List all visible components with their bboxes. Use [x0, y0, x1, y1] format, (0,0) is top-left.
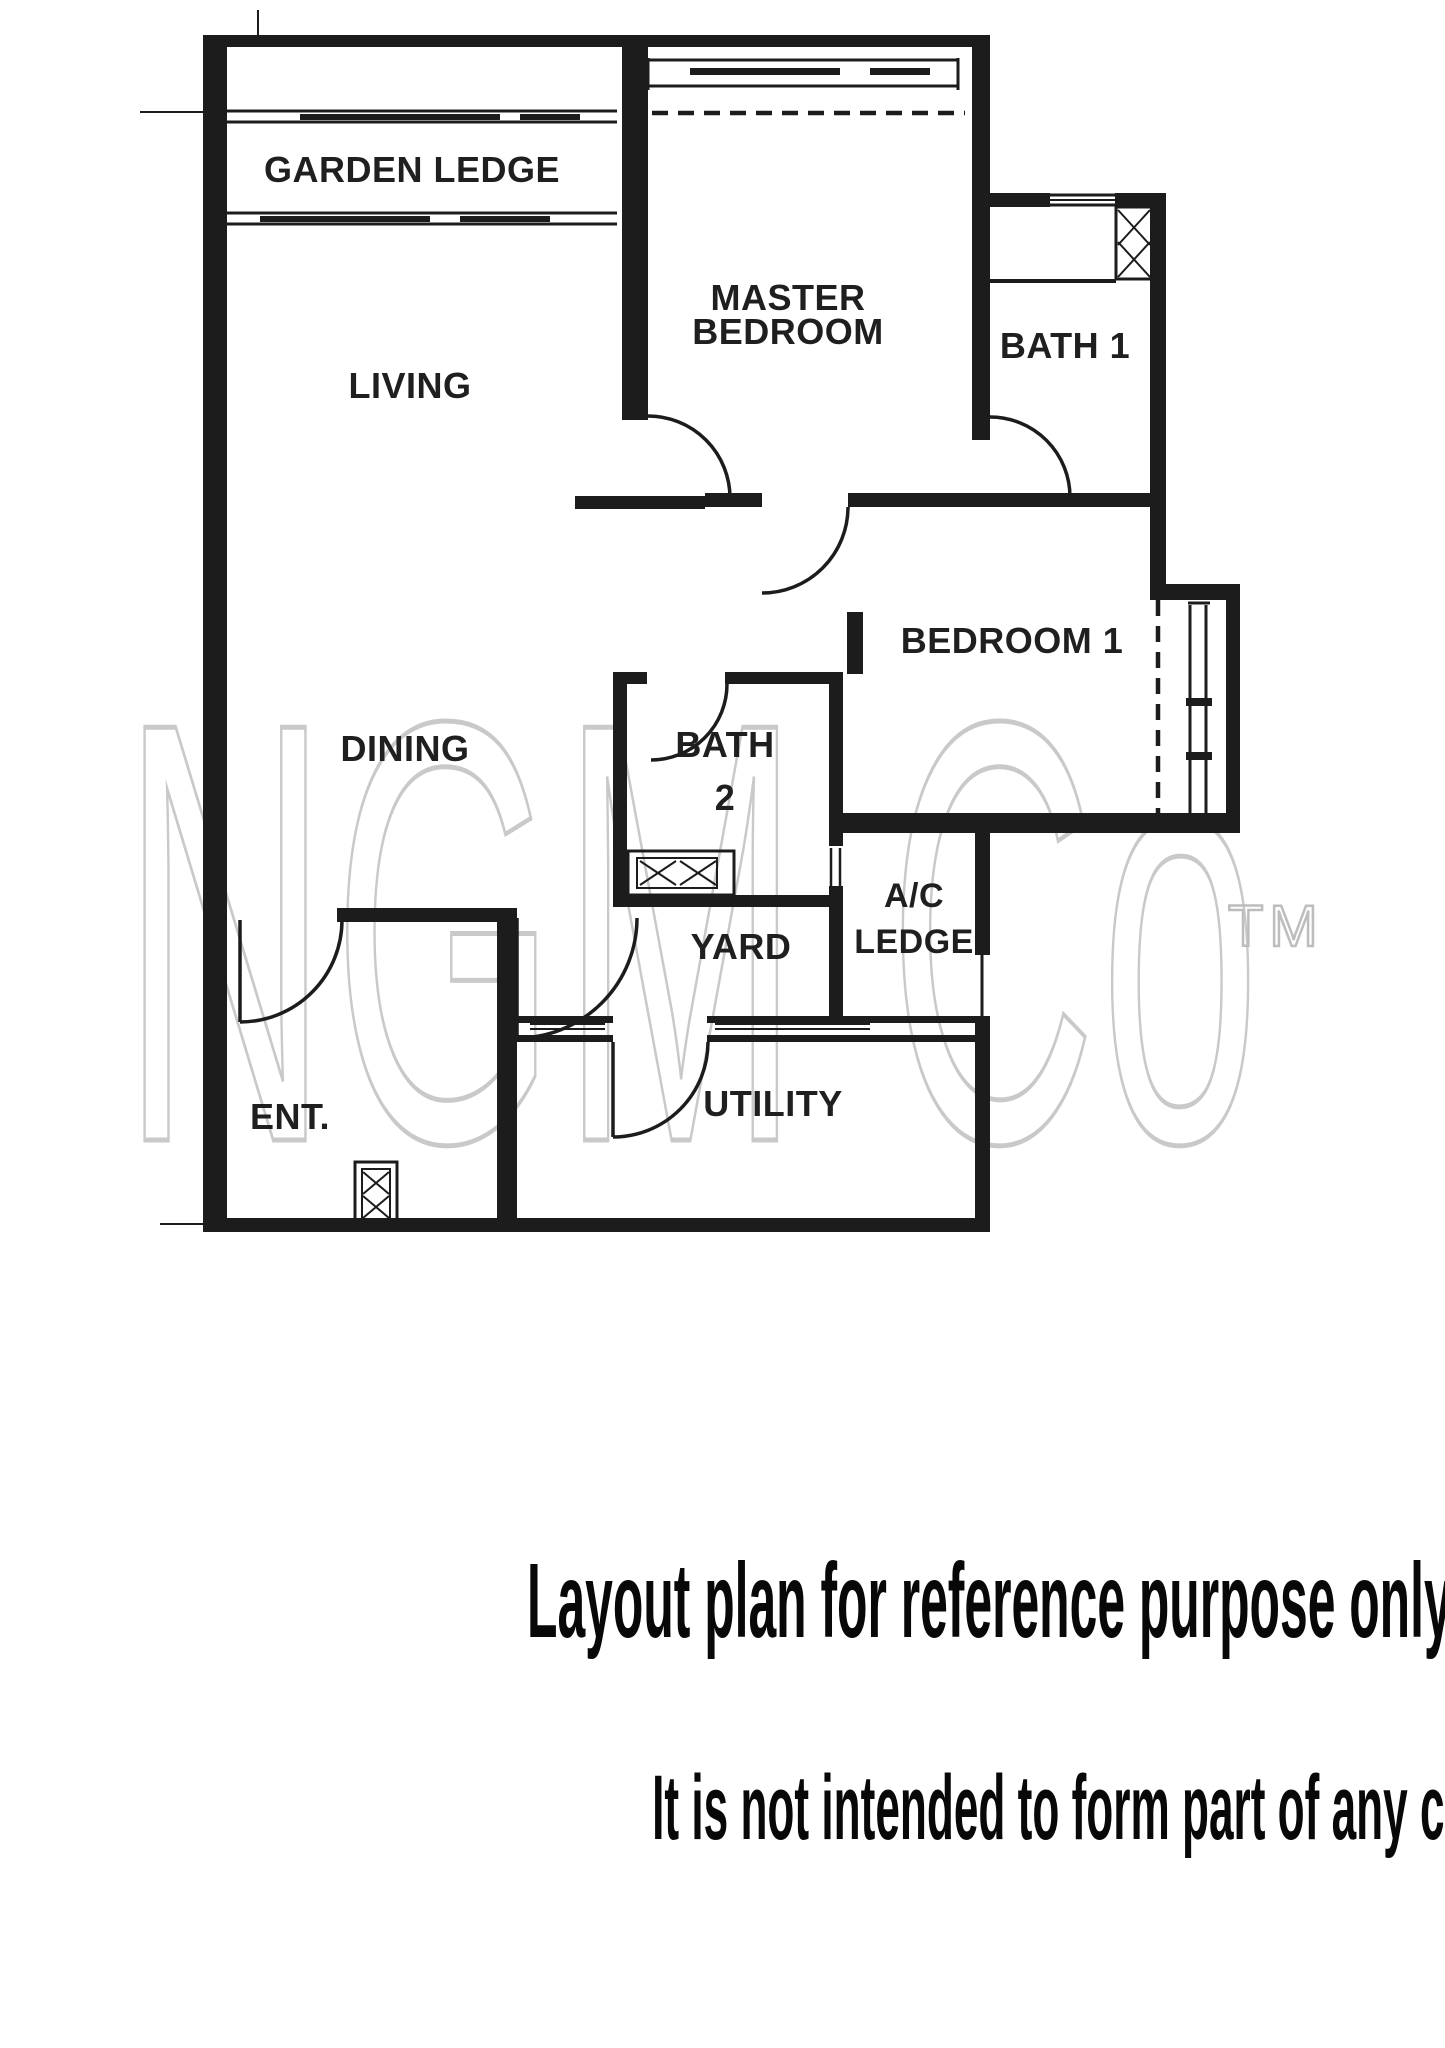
garden-ledge-window-top [227, 111, 617, 122]
bath1-shaft-hatch [1116, 207, 1152, 279]
caption-line1: Layout plan for reference purpose only. [0, 1548, 1445, 1654]
room-label-garden-ledge: GARDEN LEDGE [264, 149, 560, 190]
caption-line1-text: Layout plan for reference purpose only. [527, 1548, 1445, 1654]
room-label-bedroom1: BEDROOM 1 [901, 620, 1124, 661]
room-label-ent: ENT. [250, 1096, 330, 1137]
door-master-bedroom [648, 416, 730, 498]
room-label-living: LIVING [348, 365, 471, 406]
room-label-utility: UTILITY [703, 1083, 842, 1124]
room-label-yard: YARD [691, 926, 792, 967]
caption-line2-text: It is not intended to form part of any c… [652, 1762, 1445, 1854]
master-bedroom-window [648, 58, 958, 90]
room-label-master-line2: BEDROOM [692, 311, 884, 352]
room-label-bath2-line1: BATH [675, 724, 774, 765]
room-label-dining: DINING [341, 728, 470, 769]
garden-ledge-window-bottom [227, 213, 617, 224]
room-label-bath1: BATH 1 [1000, 325, 1130, 366]
room-label-ac-line1: A/C [884, 877, 944, 915]
door-bath1 [990, 417, 1070, 497]
room-label-bath2-line2: 2 [715, 777, 736, 818]
bath1-window [1050, 195, 1115, 205]
caption-line2: It is not intended to form part of any c… [0, 1762, 1445, 1854]
room-label-ac-line2: LEDGE [854, 923, 974, 961]
watermark-tm: TM [1228, 894, 1324, 959]
floor-plan-page: NGM Co TM [0, 0, 1445, 2048]
floor-plan-drawing: NGM Co TM [0, 0, 1445, 1300]
door-bedroom1 [762, 507, 848, 593]
